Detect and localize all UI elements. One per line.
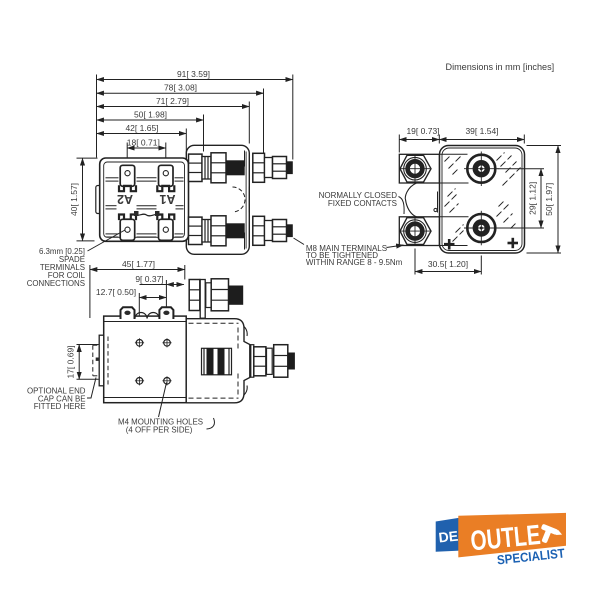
svg-text:45[ 1.77]: 45[ 1.77]	[122, 259, 155, 269]
svg-text:WITHIN RANGE 8 - 9.5Nm: WITHIN RANGE 8 - 9.5Nm	[306, 258, 403, 267]
svg-text:DE: DE	[438, 528, 459, 546]
svg-text:9[ 0.37]: 9[ 0.37]	[135, 274, 163, 284]
svg-text:50[ 1.98]: 50[ 1.98]	[134, 110, 167, 120]
svg-text:30.5[ 1.20]: 30.5[ 1.20]	[428, 259, 468, 269]
svg-text:Dimensions in mm [inches]: Dimensions in mm [inches]	[446, 62, 555, 72]
svg-text:91[ 3.59]: 91[ 3.59]	[177, 69, 210, 79]
svg-text:78[ 3.08]: 78[ 3.08]	[164, 83, 197, 93]
svg-text:50[ 1.97]: 50[ 1.97]	[544, 183, 554, 216]
svg-text:42[ 1.65]: 42[ 1.65]	[125, 123, 158, 133]
svg-text:39[ 1.54]: 39[ 1.54]	[465, 126, 498, 136]
svg-text:29[ 1.12]: 29[ 1.12]	[528, 182, 538, 215]
svg-text:18[ 0.71]: 18[ 0.71]	[127, 138, 160, 148]
svg-text:17[ 0.69]: 17[ 0.69]	[65, 345, 75, 378]
svg-text:A1: A1	[159, 192, 175, 206]
svg-text:12.7[ 0.50]: 12.7[ 0.50]	[96, 287, 136, 297]
svg-text:FIXED CONTACTS: FIXED CONTACTS	[328, 199, 397, 208]
svg-text:(4 OFF PER SIDE): (4 OFF PER SIDE)	[126, 426, 193, 435]
svg-text:71[ 2.79]: 71[ 2.79]	[156, 96, 189, 106]
svg-text:40[ 1.57]: 40[ 1.57]	[69, 183, 79, 216]
svg-text:A2: A2	[117, 192, 133, 206]
svg-text:CONNECTIONS: CONNECTIONS	[27, 279, 85, 288]
svg-text:19[ 0.73]: 19[ 0.73]	[406, 126, 439, 136]
svg-text:FITTED HERE: FITTED HERE	[34, 402, 86, 411]
